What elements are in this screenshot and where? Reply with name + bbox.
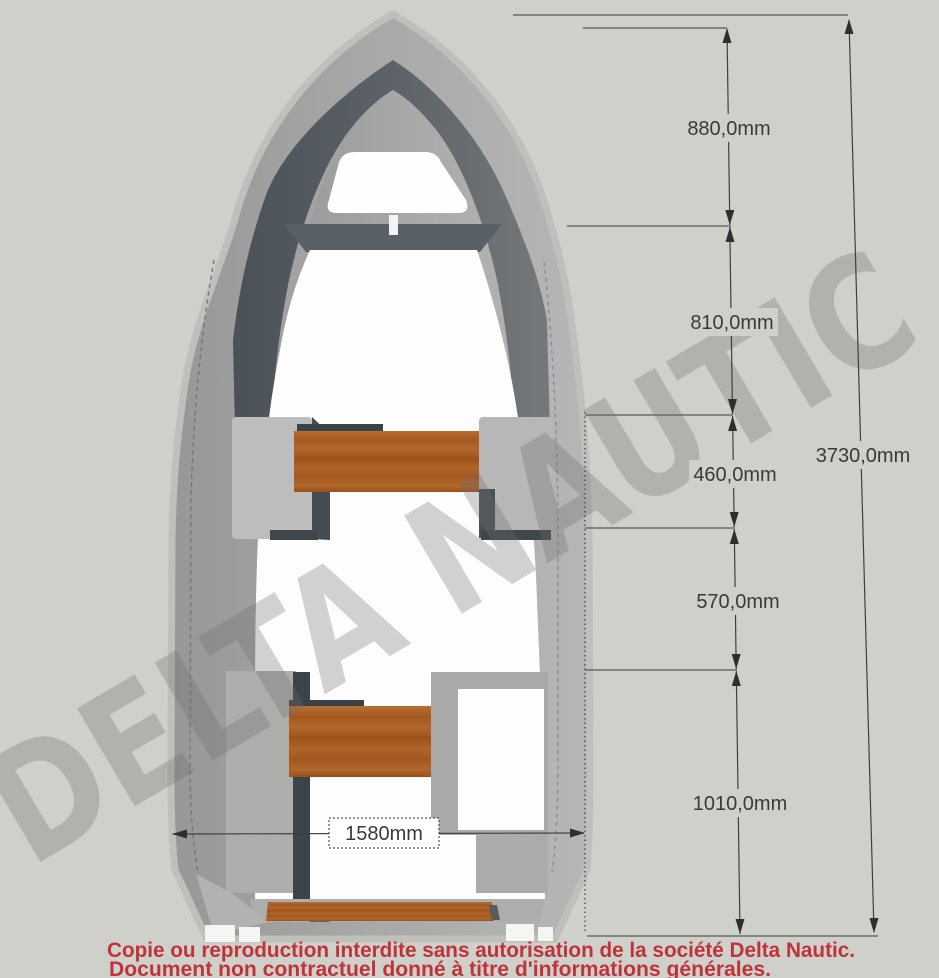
- transom-wood-trim: [266, 902, 494, 921]
- dim-460: 460,0mm: [693, 464, 776, 486]
- boat-drawing-canvas: DELTA NAUTIC: [0, 0, 939, 978]
- dim-1580: 1580mm: [345, 823, 423, 845]
- dim-1010: 1010,0mm: [693, 793, 788, 815]
- footer-line2: Document non contractuel donné à titre d…: [109, 957, 771, 978]
- dim-3730: 3730,0mm: [816, 445, 911, 467]
- stern-locker-base: [476, 835, 548, 893]
- bow-hatch-notch: [389, 215, 398, 235]
- stern-locker-opening: [458, 689, 544, 830]
- dim-570: 570,0mm: [696, 591, 779, 613]
- boat-top-view-drawing: DELTA NAUTIC: [0, 0, 939, 978]
- dim-810: 810,0mm: [690, 312, 773, 334]
- dim-880: 880,0mm: [687, 118, 770, 140]
- footer-notice: Copie ou reproduction interdite sans aut…: [107, 938, 855, 978]
